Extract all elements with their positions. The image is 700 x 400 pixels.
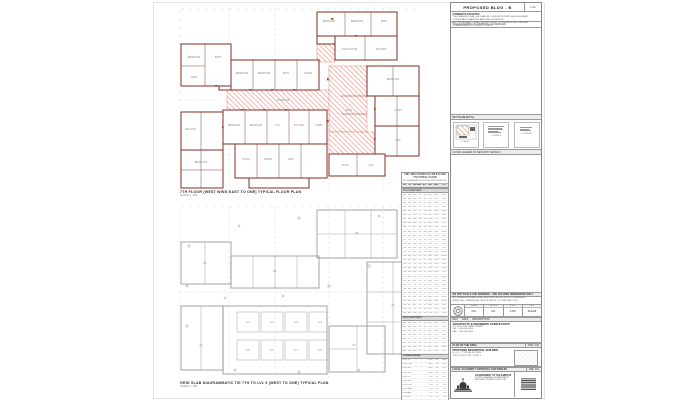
room-label: C2 — [270, 321, 274, 324]
text-block-icon — [487, 126, 505, 134]
room-label: STORE — [304, 72, 313, 75]
room-label: LIFT — [369, 164, 374, 167]
room-label: LIVING — [394, 109, 402, 112]
room-label: C7 — [294, 349, 298, 352]
schedule: UNIT AREA SCHEDULE FOR 6TH AND 7TH TYPIC… — [401, 172, 449, 400]
room-label: S3 — [353, 344, 357, 347]
project-section: PROPOSED RESIDENTIAL BUILDING B + G + 7 … — [451, 348, 541, 367]
firm-logo — [451, 305, 464, 316]
room-label: B2 — [274, 270, 278, 273]
circle-marker — [298, 371, 300, 373]
key-plan-caption-3: 3. LEGEND — [521, 133, 531, 135]
authority-logo — [451, 372, 475, 397]
room-label: BEDROOM — [228, 124, 240, 127]
room-label: BEDROOM — [258, 72, 270, 75]
area-bar-right: DRG. NO. — [525, 344, 539, 347]
firm-line-3: FAX : +000 000 0000 — [453, 331, 540, 334]
room-label: BEDROOM — [195, 161, 207, 164]
upper-floor-plan: BEDROOMBEDROOMBATHLIVING ROOMKITCHENBEDR… — [179, 8, 422, 189]
room-label: BATH — [381, 20, 387, 23]
key-plan-cell-2: 2. LEVEL 6 — [483, 122, 509, 148]
text-block-icon — [519, 127, 535, 132]
info-lines: ALL DIMENSIONS ARE IN MILLIMETRES UNLESS… — [451, 297, 541, 305]
credit-col: CHECKEDA.R. — [483, 305, 502, 316]
room-label: C1 — [246, 321, 250, 324]
room-label: B1 — [356, 232, 360, 235]
room-label: B3 — [204, 262, 208, 265]
upper-plan-scale: SCALE 1 : 100 — [180, 194, 410, 197]
circle-marker — [188, 245, 190, 247]
room-label: MAID — [191, 76, 197, 79]
lower-grid-plan: C1C2C3C4C5C6C7C8B1B2B3S1S2S3 — [179, 206, 422, 378]
key-plan-caption-1: 1. LEVEL 7 — [460, 141, 470, 143]
project-line-3: ON PLOT NO. 123 - ZONE 1 — [453, 355, 511, 358]
room-label: C6 — [270, 349, 274, 352]
credit-col: SCALE1:100 — [503, 305, 522, 316]
credit-col: DATE06.2019 — [522, 305, 541, 316]
revision-bar-text: REV DATE DESCRIPTION — [453, 318, 490, 321]
key-plan-label: KEY PLAN (N.T.S.) — [453, 116, 475, 119]
drawing-sheet-canvas: BEDROOMBEDROOMBATHLIVING ROOMKITCHENBEDR… — [0, 0, 700, 400]
room-label: C3 — [294, 321, 298, 324]
room-label: C8 — [318, 349, 322, 352]
room-label: C5 — [246, 349, 250, 352]
room-label: LIVING ROOM — [341, 48, 357, 51]
room-label: BED — [396, 139, 401, 142]
status-line: STAGE DRAWING OF APPROVAL AS DETAILED — [453, 23, 506, 26]
notes-section: COMMENTS ON NOTES THIS DRAWING SHALL BE … — [451, 12, 541, 22]
room-label: S1 — [392, 304, 396, 307]
cross-marker — [186, 285, 189, 288]
key-plan-caption-2: 2. LEVEL 6 — [491, 135, 501, 137]
room-label: BEDROOM — [351, 20, 363, 23]
room-label: KITCHEN — [376, 48, 387, 51]
footer-right-cell — [514, 372, 541, 397]
room-label: BEDROOM — [250, 124, 262, 127]
room-label: S2 — [200, 344, 204, 347]
circle-marker — [186, 325, 188, 327]
room-label: CORRIDOR — [276, 99, 289, 102]
cross-marker — [224, 297, 227, 300]
room-label: DINING — [264, 158, 273, 161]
room-label: BALCONY — [185, 128, 197, 131]
status-section: STAGE DRAWING OF APPROVAL AS DETAILED — [451, 22, 541, 28]
key-plan-cells: 1. LEVEL 7 2. LEVEL 6 3. LEGEND — [451, 120, 541, 149]
credits-section: DRAWNM.G.CHECKEDA.R.SCALE1:100DATE06.201… — [451, 305, 541, 317]
room-label: KITCHEN — [294, 124, 305, 127]
circular-logo-icon — [453, 306, 463, 316]
key-plan-footer-bar: FLOOR LEGEND OF SECURITY DETAILS — [451, 149, 541, 155]
cross-marker — [282, 295, 285, 298]
key-plan-footer: FLOOR LEGEND OF SECURITY DETAILS — [453, 151, 501, 154]
cross-marker — [358, 369, 361, 372]
approval-stamp-block — [521, 378, 536, 390]
info-bar-text: DO NOT SCALE THE DRAWING - USE FIGURED D… — [453, 293, 534, 296]
lower-plan-caption: GRID SLAB DIAGRAMMATIC TIE 7TH TO LVL 6 … — [180, 381, 410, 388]
sheet-ref-box: A-01 — [524, 3, 541, 11]
room-label: STAIR — [342, 164, 349, 167]
room-label: LIVING — [242, 158, 250, 161]
schedule-body: NOTYPRMBALA/CNETGRSTOT7TH FLOOR UNITS701… — [402, 184, 448, 400]
room-label: LOBBY — [315, 124, 323, 127]
approval-bar-left: LOCAL AUTHORITY APPROVAL FOR PRELIM. — [453, 368, 508, 371]
credit-col: DRAWNM.G. — [464, 305, 483, 316]
cross-marker — [378, 215, 381, 218]
footer-text: GOVERNMENT OF THE EMIRATE TOWN PLANNING … — [475, 372, 514, 397]
room-label: BEDROOM — [188, 56, 200, 59]
room-label: W.C. — [275, 124, 281, 127]
room-label: BATH — [346, 109, 352, 112]
info-line-2: VERIFY ALL DIMENSIONS ON SITE PRIOR TO C… — [453, 300, 540, 303]
slab-partitions — [201, 210, 419, 372]
footer-section: GOVERNMENT OF THE EMIRATE TOWN PLANNING … — [451, 372, 541, 397]
firm-section: ARCHITECTS & ENGINEERS CONSULTANTS P.O. … — [451, 322, 541, 343]
setting-out-markers — [186, 215, 417, 374]
lower-plan-scale: SCALE 1 : 100 — [180, 385, 410, 388]
circle-marker — [368, 265, 370, 267]
key-plan-thumbnail-icon — [455, 124, 477, 140]
room-label: BEDROOM — [387, 78, 399, 81]
area-bar-left: PLAN OF THE AREA — [453, 344, 477, 347]
sheet-title: PROPOSED BLDG - B — [451, 3, 524, 11]
room-label: BEDROOM — [323, 20, 335, 23]
upper-plan-caption: 7TH FLOOR (WEST WING EAST TO ONE) TYPICA… — [180, 190, 410, 197]
footer-line-3: BUILDING PERMITS SECTION — [475, 379, 514, 382]
title-bar: PROPOSED BLDG - B A-01 — [451, 3, 541, 12]
title-block: PROPOSED BLDG - B A-01 COMMENTS ON NOTES… — [450, 2, 542, 399]
room-label: C4 — [318, 321, 322, 324]
dome-building-icon — [453, 376, 473, 393]
key-plan-cell-3: 3. LEGEND — [514, 122, 540, 148]
credits-grid: DRAWNM.G.CHECKEDA.R.SCALE1:100DATE06.201… — [464, 305, 541, 316]
cross-marker — [238, 225, 241, 228]
room-label: BEDROOM — [236, 72, 248, 75]
room-label: BED — [289, 158, 294, 161]
room-label: BATH — [215, 56, 221, 59]
key-plan-cell-1: 1. LEVEL 7 — [453, 122, 479, 148]
cross-marker — [234, 369, 237, 372]
approval-bar-right: REF. NO. — [526, 368, 540, 371]
stamp-box — [514, 350, 538, 366]
room-label: BATH — [283, 72, 289, 75]
circle-marker — [298, 217, 300, 219]
